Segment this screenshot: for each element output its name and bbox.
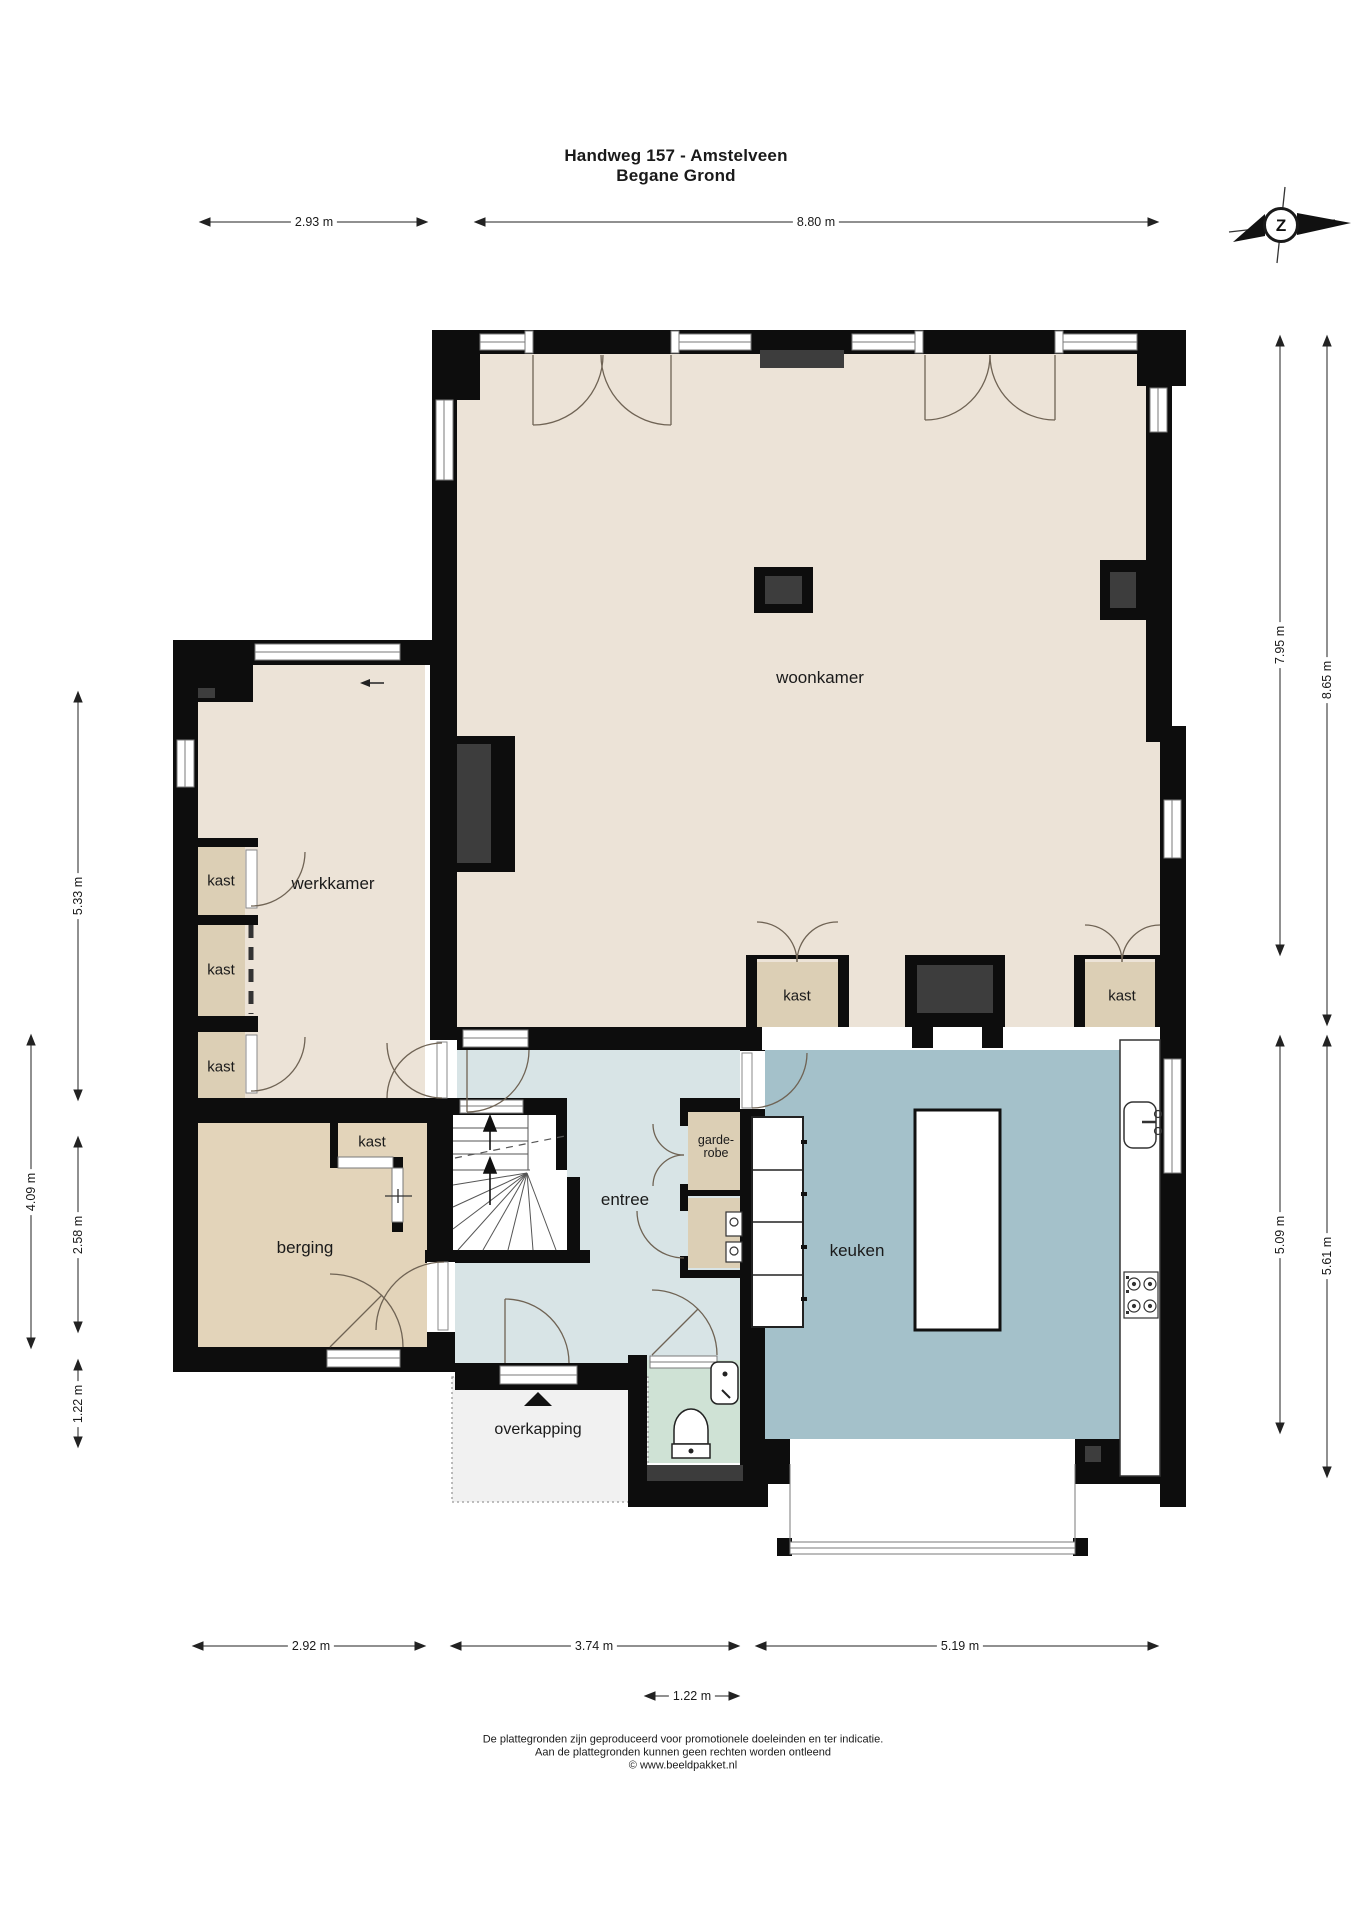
dim-bottom-right: 5.19 m bbox=[937, 1639, 983, 1653]
dim-left-outer: 4.09 m bbox=[24, 1169, 38, 1215]
dim-right-outer-bottom: 5.61 m bbox=[1320, 1233, 1334, 1279]
label-kast-woonkamer-left: kast bbox=[783, 988, 811, 1005]
dim-right-outer-top: 8.65 m bbox=[1320, 657, 1334, 703]
dim-right-inner-top: 7.95 m bbox=[1273, 622, 1287, 668]
sink-icon bbox=[1124, 1102, 1162, 1148]
corner-sink-icon bbox=[711, 1362, 738, 1404]
dim-top-right: 8.80 m bbox=[793, 215, 839, 229]
page-title: Handweg 157 - Amstelveen Begane Grond bbox=[564, 146, 787, 186]
title-floor: Begane Grond bbox=[564, 166, 787, 186]
disclaimer-line1: De plattegronden zijn geproduceerd voor … bbox=[483, 1734, 884, 1747]
floorplan-drawing: Z bbox=[0, 0, 1358, 1920]
stove-icon bbox=[1124, 1272, 1158, 1318]
compass-letter: Z bbox=[1276, 216, 1286, 235]
label-woonkamer: woonkamer bbox=[776, 668, 864, 688]
label-berging: berging bbox=[277, 1238, 334, 1258]
title-address: Handweg 157 - Amstelveen bbox=[564, 146, 787, 166]
label-entree: entree bbox=[601, 1190, 649, 1210]
label-kast-1: kast bbox=[207, 873, 235, 890]
dim-top-left: 2.93 m bbox=[291, 215, 337, 229]
kitchen-cabinets bbox=[752, 1117, 807, 1327]
label-werkkamer: werkkamer bbox=[291, 874, 374, 894]
dim-left-werkkamer: 5.33 m bbox=[71, 873, 85, 919]
dim-right-inner-bottom: 5.09 m bbox=[1273, 1212, 1287, 1258]
kitchen-island bbox=[915, 1110, 1000, 1330]
doormat bbox=[647, 1465, 743, 1481]
dim-left-berging: 2.58 m bbox=[71, 1212, 85, 1258]
label-overkapping: overkapping bbox=[494, 1421, 581, 1439]
label-kast-woonkamer-right: kast bbox=[1108, 988, 1136, 1005]
overkapping-area bbox=[452, 1377, 648, 1502]
disclaimer-line2: Aan de plattegronden kunnen geen rechten… bbox=[483, 1747, 884, 1760]
room-floors bbox=[196, 353, 1162, 1502]
dim-bottom-door: 1.22 m bbox=[669, 1689, 715, 1703]
dim-bottom-left: 2.92 m bbox=[288, 1639, 334, 1653]
dim-left-overkapping: 1.22 m bbox=[71, 1381, 85, 1427]
label-garderobe: garde- robe bbox=[698, 1134, 734, 1160]
compass-icon: Z bbox=[1229, 187, 1351, 263]
toilet-icon bbox=[672, 1409, 710, 1458]
disclaimer-line3: © www.beeldpakket.nl bbox=[483, 1760, 884, 1773]
staircase bbox=[453, 1115, 567, 1250]
dim-bottom-middle: 3.74 m bbox=[571, 1639, 617, 1653]
floorplan-page: Z Handweg 157 - Amstelveen Begane Grond … bbox=[0, 0, 1358, 1920]
disclaimer: De plattegronden zijn geproduceerd voor … bbox=[483, 1734, 884, 1773]
label-keuken: keuken bbox=[830, 1241, 885, 1261]
label-kast-2: kast bbox=[207, 962, 235, 979]
label-kast-3: kast bbox=[207, 1059, 235, 1076]
label-kast-berging: kast bbox=[358, 1134, 386, 1151]
